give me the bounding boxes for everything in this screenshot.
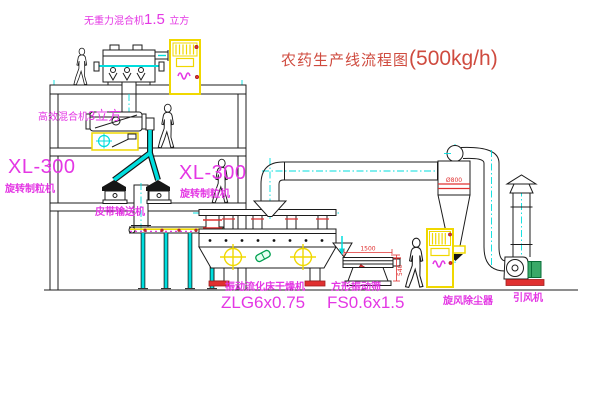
label-dryer-model: ZLG6x0.75 <box>221 294 305 311</box>
label-sieve-name: 方形振动筛 <box>331 283 381 293</box>
fluid-bed-dryer <box>193 210 352 287</box>
induced-draft-fan <box>504 257 544 286</box>
label-dryer-name: 振动流化床干燥机 <box>225 283 305 293</box>
label-granulator-left-name: 旋转制粒机 <box>5 185 55 195</box>
person-figure <box>406 238 423 287</box>
label-fan: 引风机 <box>513 294 543 304</box>
granulator-right <box>146 180 171 204</box>
person-figure <box>74 48 87 85</box>
sieve-length-dimension: 1500 <box>360 246 375 253</box>
granulator-left <box>102 180 127 204</box>
label-granulator-right-name: 旋转制粒机 <box>180 190 230 200</box>
title-text: 农药生产线流程图 <box>281 52 409 69</box>
label-belt-conveyor: 皮带输送机 <box>95 208 145 218</box>
downcomer-pipe <box>484 150 506 271</box>
control-cabinet-lower <box>427 229 453 287</box>
control-cabinet-upper <box>170 40 200 94</box>
fan-motor-icon <box>528 262 541 278</box>
stack-cap-icon <box>507 175 536 184</box>
label-sieve-model: FS0.6x1.5 <box>327 294 405 311</box>
flowsheet-canvas: 1500 540 Ø800 <box>0 0 600 403</box>
cyclone-diameter-dimension: Ø800 <box>446 177 462 184</box>
person-figure <box>158 104 173 148</box>
label-granulator-right-model: XL-300 <box>179 163 247 183</box>
exhaust-stack <box>507 175 536 259</box>
label-granulator-left-model: XL-300 <box>8 157 76 177</box>
title-capacity: (500kg/h) <box>409 47 498 70</box>
label-cyclone: 旋风除尘器 <box>443 297 493 307</box>
diagram-title: 农药生产线流程图(500kg/h) <box>281 47 498 71</box>
label-gravity-mixer: 无重力混合机1.5 立方 <box>84 12 189 28</box>
sieve-height-dimension: 540 <box>397 264 404 276</box>
vibrating-sieve: 1500 540 <box>343 246 404 286</box>
label-high-mixer: 高效混合机3立方 <box>38 108 121 124</box>
